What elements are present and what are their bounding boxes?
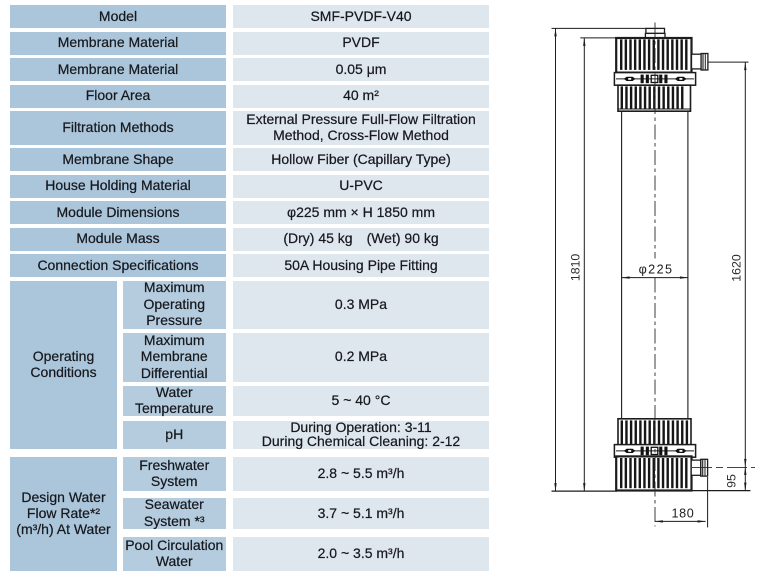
- svg-text:1810: 1810: [568, 254, 582, 282]
- svg-text:φ225: φ225: [639, 262, 674, 276]
- svg-text:1620: 1620: [729, 254, 743, 282]
- svg-text:95: 95: [725, 474, 739, 488]
- svg-text:180: 180: [671, 506, 694, 520]
